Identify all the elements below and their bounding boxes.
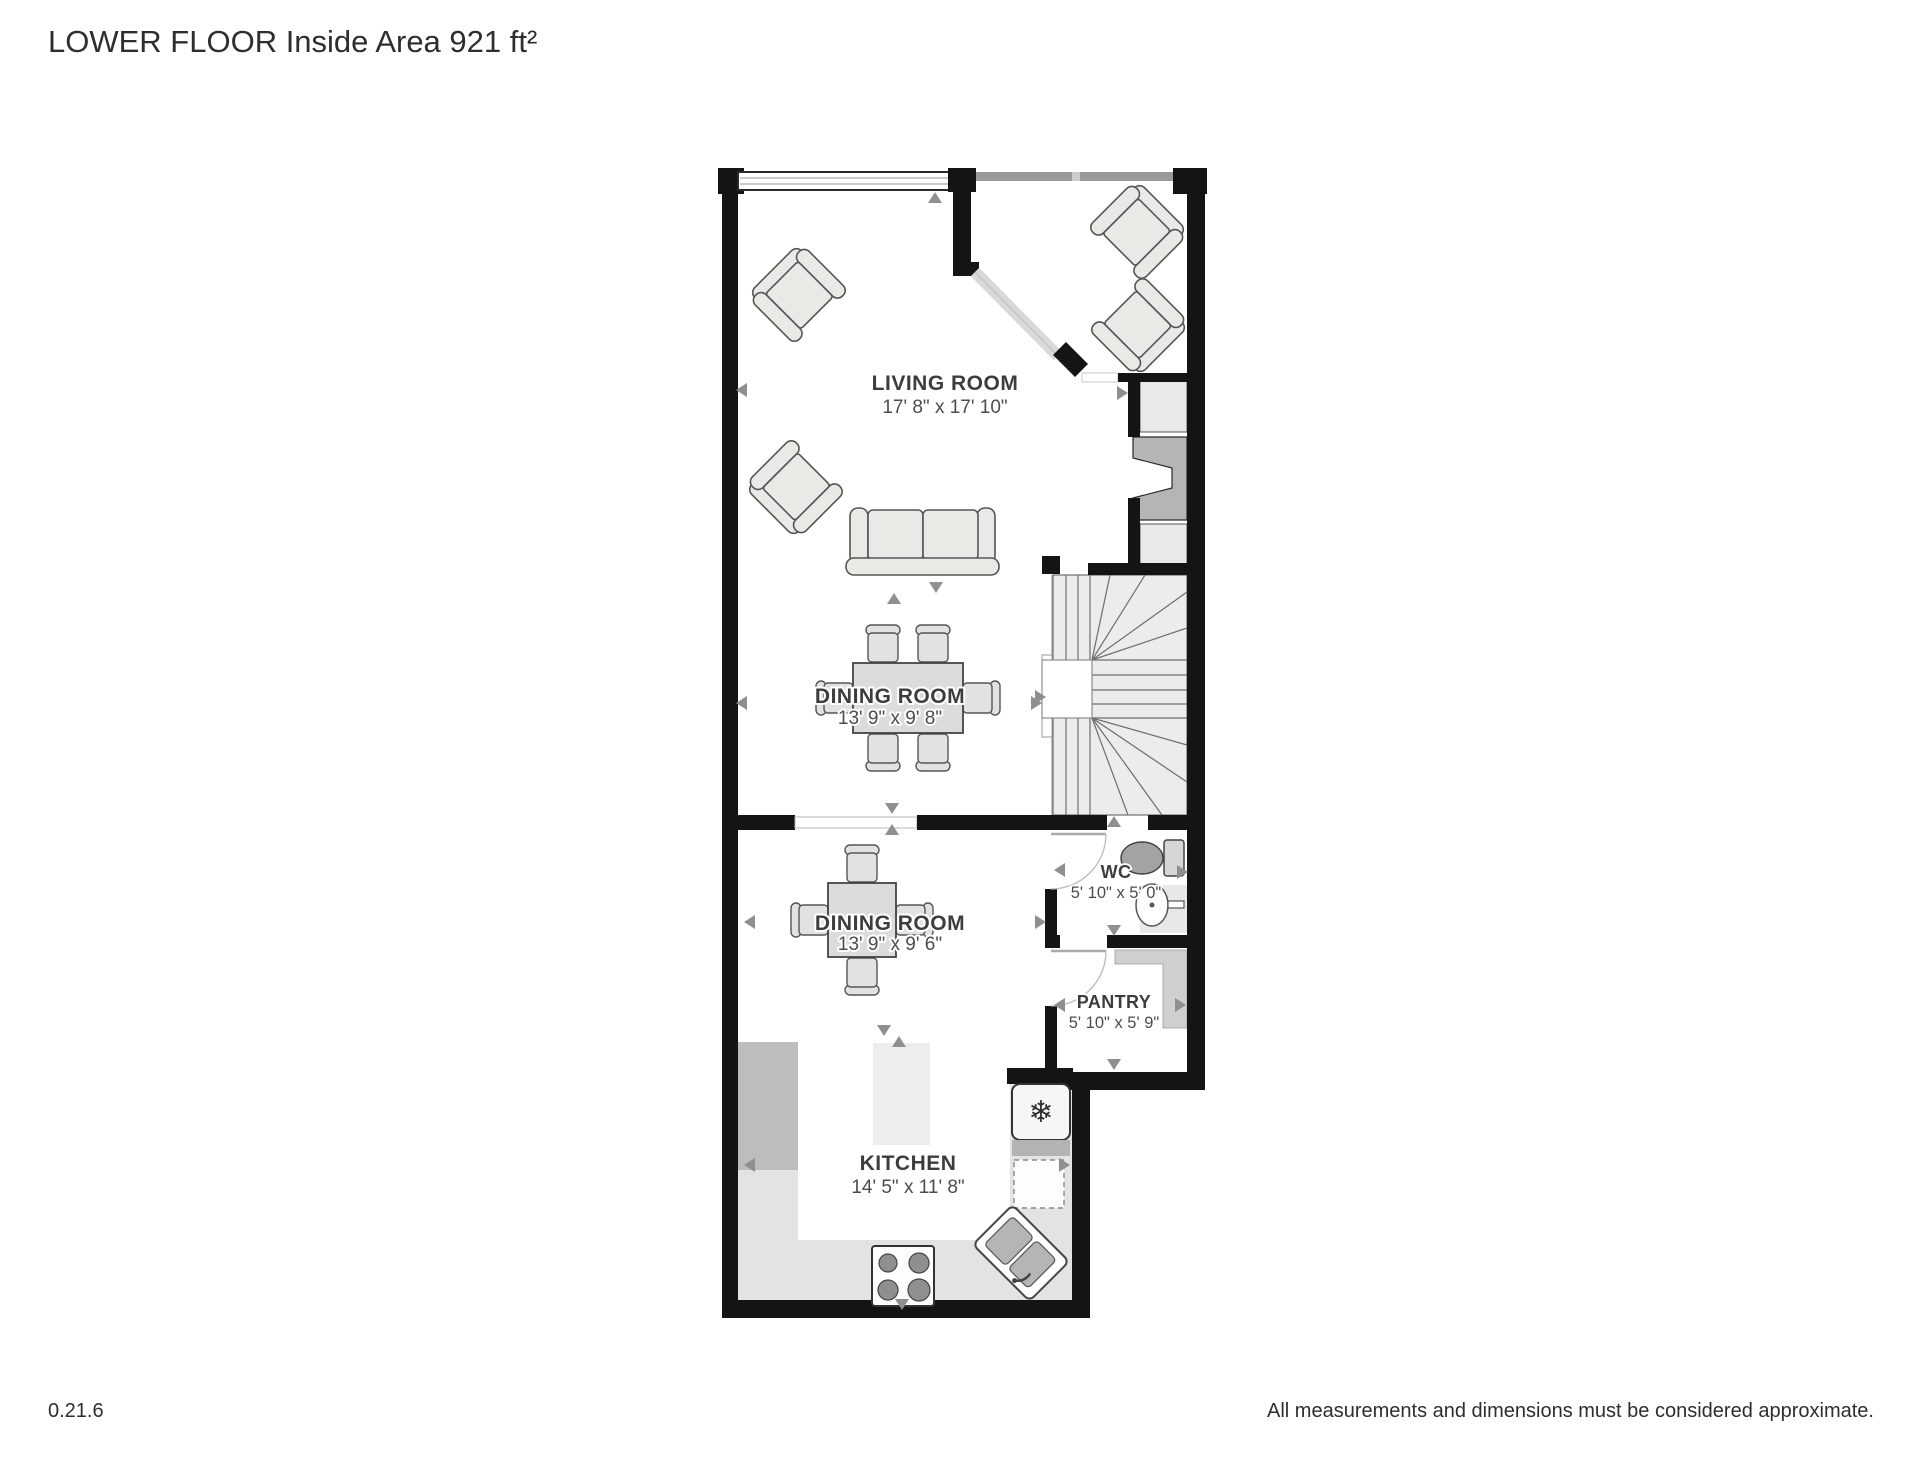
wc-sink-tap bbox=[1168, 901, 1184, 908]
room-dims-kitchen: 14' 5" x 11' 8" bbox=[851, 1177, 964, 1198]
room-dims-wc: 5' 10" x 5' 0" bbox=[1071, 884, 1162, 902]
wall-right bbox=[1187, 172, 1205, 1090]
room-dims-dining-upper: 13' 9" x 9' 8" bbox=[838, 708, 942, 729]
opening-alcove bbox=[1082, 373, 1118, 382]
room-label-kitchen: KITCHEN bbox=[860, 1152, 957, 1175]
dishwasher bbox=[1014, 1160, 1064, 1208]
stove bbox=[872, 1246, 934, 1306]
kitchen-counter-dark bbox=[738, 1042, 798, 1172]
wall-left bbox=[722, 172, 738, 1318]
sofa bbox=[846, 508, 999, 575]
room-label-dining-lower: DINING ROOM bbox=[815, 912, 965, 935]
floor-plan-page: LOWER FLOOR Inside Area 921 ft² bbox=[0, 0, 1920, 1483]
floor-plan-drawing: ❄ bbox=[0, 0, 1920, 1483]
wall-kitchen-right bbox=[1072, 1090, 1090, 1318]
fridge-plinth bbox=[1012, 1140, 1070, 1156]
room-dims-pantry: 5' 10" x 5' 9" bbox=[1069, 1014, 1160, 1032]
fridge: ❄ bbox=[1012, 1084, 1070, 1140]
room-dims-living: 17' 8" x 17' 10" bbox=[882, 397, 1007, 418]
window-living-room bbox=[738, 172, 950, 190]
disclaimer-text: All measurements and dimensions must be … bbox=[1267, 1400, 1874, 1423]
wall-top-rail-left bbox=[976, 172, 1072, 181]
wall-stair-top bbox=[1088, 563, 1187, 575]
room-dims-dining-lower: 13' 9" x 9' 6" bbox=[838, 934, 942, 955]
page-title: LOWER FLOOR Inside Area 921 ft² bbox=[48, 24, 537, 60]
version-label: 0.21.6 bbox=[48, 1400, 104, 1423]
wall-top-rail-right bbox=[1080, 172, 1175, 181]
staircase bbox=[1042, 575, 1187, 815]
wall-entry-stub bbox=[953, 190, 971, 268]
wall-wc-pantry bbox=[1107, 935, 1187, 948]
room-label-wc: WC bbox=[1101, 862, 1132, 882]
stair-landing bbox=[1042, 660, 1092, 718]
room-label-living: LIVING ROOM bbox=[872, 372, 1019, 395]
opening-dining bbox=[795, 817, 917, 828]
room-label-dining-upper: DINING ROOM bbox=[815, 685, 965, 708]
snowflake-icon: ❄ bbox=[1028, 1096, 1053, 1129]
kitchen-passage-shading bbox=[873, 1043, 930, 1145]
room-label-pantry: PANTRY bbox=[1077, 992, 1151, 1012]
